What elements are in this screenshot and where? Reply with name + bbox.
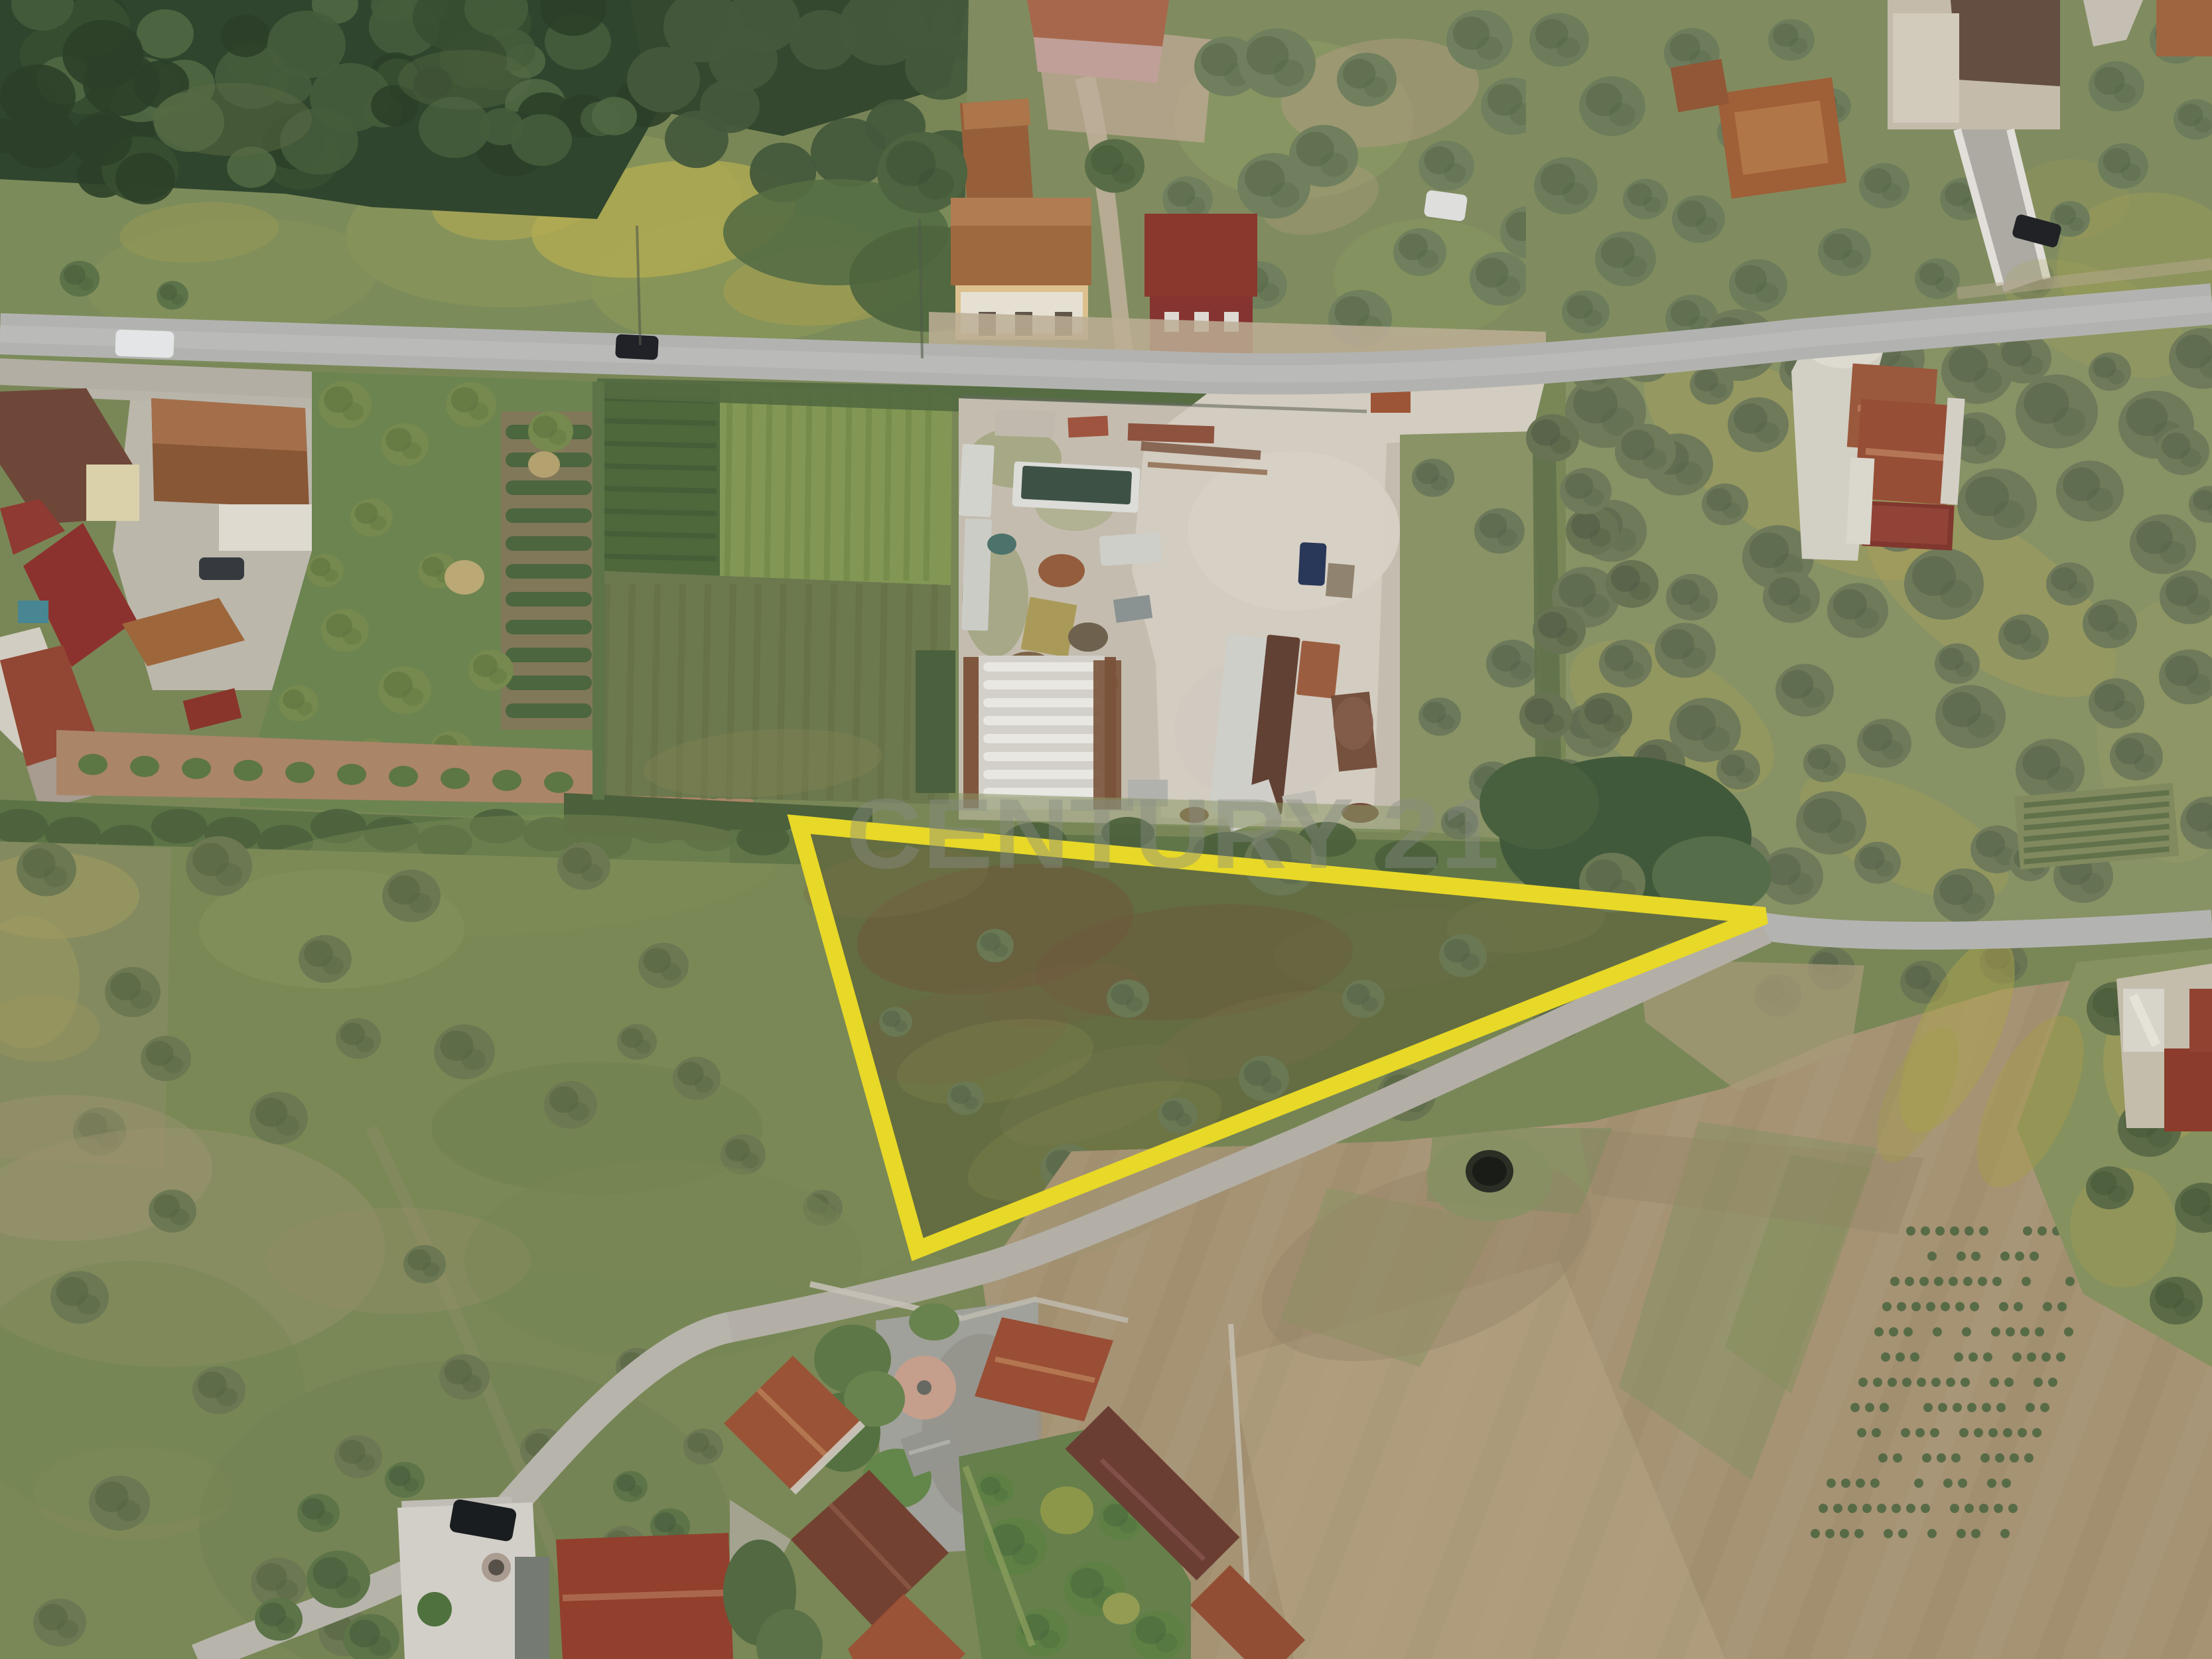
- svg-text:CENTURY 21: CENTURY 21: [846, 778, 1499, 889]
